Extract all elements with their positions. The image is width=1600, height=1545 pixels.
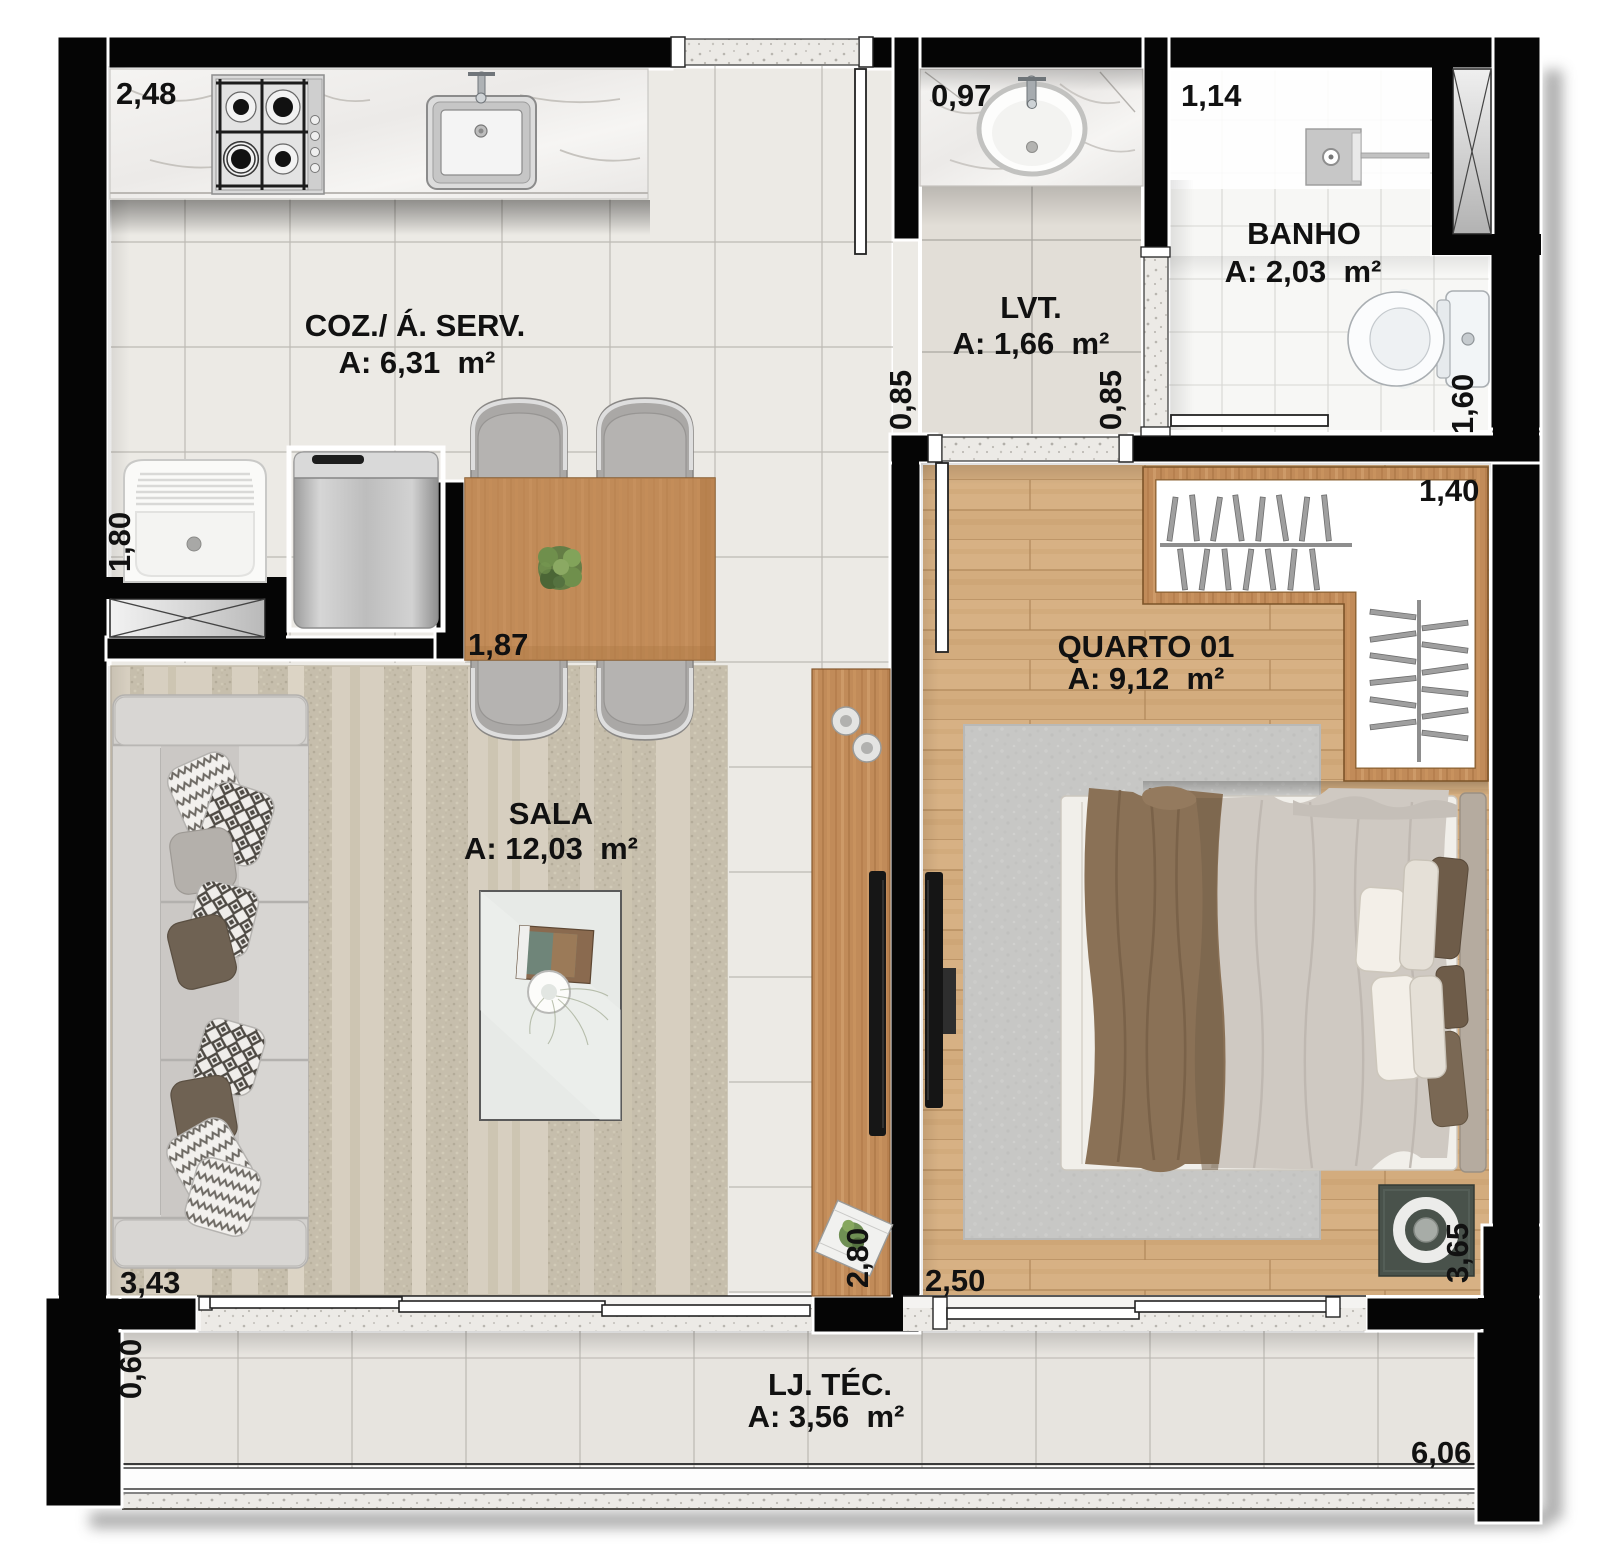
svg-text:2,50: 2,50 xyxy=(925,1263,985,1298)
svg-text:1,80: 1,80 xyxy=(102,512,137,572)
svg-text:A: 2,03 m²: A: 2,03 m² xyxy=(1225,254,1382,289)
svg-text:A: 9,12 m²: A: 9,12 m² xyxy=(1068,661,1225,696)
svg-text:1,40: 1,40 xyxy=(1419,473,1479,508)
svg-text:QUARTO 01: QUARTO 01 xyxy=(1058,629,1235,664)
svg-text:0,60: 0,60 xyxy=(113,1339,148,1399)
svg-text:SALA: SALA xyxy=(509,796,593,831)
svg-text:A: 6,31 m²: A: 6,31 m² xyxy=(339,345,496,380)
svg-text:3,43: 3,43 xyxy=(120,1265,180,1300)
svg-text:1,14: 1,14 xyxy=(1181,78,1242,113)
svg-text:0,97: 0,97 xyxy=(931,78,991,113)
svg-text:LVT.: LVT. xyxy=(1000,290,1061,325)
svg-text:0,85: 0,85 xyxy=(883,370,918,430)
svg-text:2,48: 2,48 xyxy=(116,76,176,111)
svg-text:A: 1,66 m²: A: 1,66 m² xyxy=(953,326,1110,361)
svg-text:COZ./ Á. SERV.: COZ./ Á. SERV. xyxy=(305,308,526,343)
svg-text:1,60: 1,60 xyxy=(1445,374,1480,434)
svg-text:LJ. TÉC.: LJ. TÉC. xyxy=(768,1367,892,1402)
svg-text:A: 12,03 m²: A: 12,03 m² xyxy=(464,831,638,866)
svg-text:BANHO: BANHO xyxy=(1247,216,1361,251)
svg-text:2,80: 2,80 xyxy=(840,1228,875,1288)
svg-text:0,85: 0,85 xyxy=(1093,370,1128,430)
svg-text:6,06: 6,06 xyxy=(1411,1435,1471,1470)
svg-text:A: 3,56 m²: A: 3,56 m² xyxy=(748,1399,905,1434)
svg-text:3,65: 3,65 xyxy=(1440,1223,1475,1283)
svg-text:1,87: 1,87 xyxy=(468,627,528,662)
